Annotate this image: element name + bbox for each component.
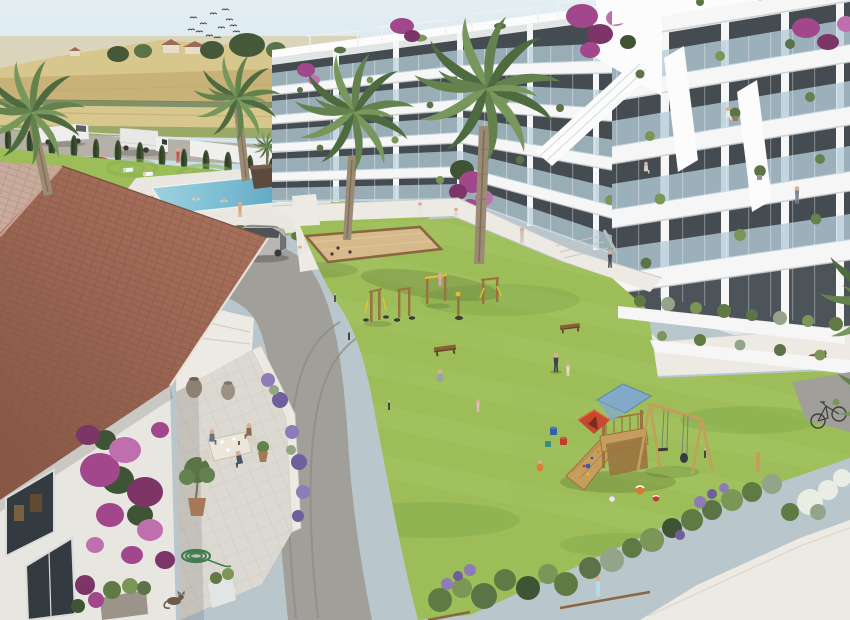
wooden-post — [756, 452, 760, 472]
white-flower-bush — [797, 469, 850, 520]
architectural-render: Aerial render of a Mediterranean apartme… — [0, 0, 850, 620]
terrace-planter-box — [208, 568, 236, 608]
wall-planter — [100, 578, 151, 620]
